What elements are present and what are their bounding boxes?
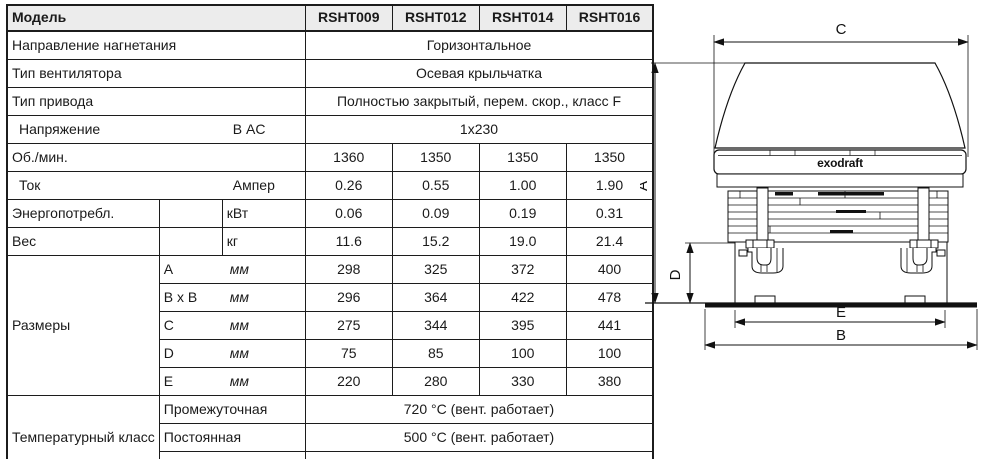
value-cell: 1350 xyxy=(392,144,479,172)
value-cell: 372 xyxy=(479,256,566,284)
value-cell: 344 xyxy=(392,312,479,340)
value-cell: 500 °C (вент. работает) xyxy=(305,424,653,452)
row-drive-type: Тип привода Полностью закрытый, перем. с… xyxy=(7,88,653,116)
value-cell: Max. 250 °C (вент. не работает) xyxy=(305,452,653,459)
value-cell: Полностью закрытый, перем. скор., класс … xyxy=(305,88,653,116)
value-cell: 85 xyxy=(392,340,479,368)
model-column-rsht012: RSHT012 xyxy=(392,5,479,31)
value-cell: 364 xyxy=(392,284,479,312)
row-label: Энергопотребл. xyxy=(7,200,159,228)
value-cell: 15.2 xyxy=(392,228,479,256)
unit-label: мм xyxy=(230,345,249,361)
fan-dimension-diagram: C A D E B exodraft xyxy=(640,0,998,459)
value-cell: 422 xyxy=(479,284,566,312)
unit-label: Ампер xyxy=(218,178,301,194)
value-cell: 280 xyxy=(392,368,479,396)
value-cell: 11.6 xyxy=(305,228,392,256)
value-cell: 395 xyxy=(479,312,566,340)
temp-sub-label: Постоянная xyxy=(159,424,305,452)
value-cell: 296 xyxy=(305,284,392,312)
row-label: Тип вентилятора xyxy=(7,60,305,88)
value-cell: 0.26 xyxy=(305,172,392,200)
dimension-letter: D xyxy=(164,346,230,362)
unit-label: мм xyxy=(230,373,249,389)
row-label-with-unit: Ток Ампер xyxy=(7,172,305,200)
value-cell: 325 xyxy=(392,256,479,284)
temp-sub-label: Промежуточная xyxy=(159,396,305,424)
dim-label-c: C xyxy=(836,21,847,38)
row-label: Напряжение xyxy=(12,122,218,138)
support-post-right xyxy=(918,188,929,245)
unit-label: кг xyxy=(222,228,305,256)
dim-label-d: D xyxy=(667,269,684,280)
dimension-letter: A xyxy=(164,262,230,278)
dim-label-a: A xyxy=(640,181,651,191)
value-cell: Горизонтальное xyxy=(305,31,653,60)
value-cell: 0.55 xyxy=(392,172,479,200)
value-cell: 220 xyxy=(305,368,392,396)
row-fan-type: Тип вентилятора Осевая крыльчатка xyxy=(7,60,653,88)
value-cell: 1360 xyxy=(305,144,392,172)
dimension-letter-cell: Aмм xyxy=(159,256,305,284)
dim-label-e: E xyxy=(836,304,846,321)
row-voltage: Напряжение В AC 1x230 xyxy=(7,116,653,144)
row-label: Направление нагнетания xyxy=(7,31,305,60)
dimension-letter-cell: Eмм xyxy=(159,368,305,396)
value-cell: 0.19 xyxy=(479,200,566,228)
row-label: Ток xyxy=(12,178,218,194)
dimension-d xyxy=(685,243,735,303)
model-column-rsht014: RSHT014 xyxy=(479,5,566,31)
row-label: Об./мин. xyxy=(7,144,305,172)
row-label: Тип привода xyxy=(7,88,305,116)
empty-cell xyxy=(159,200,222,228)
base-strip xyxy=(717,174,963,187)
value-cell: Осевая крыльчатка xyxy=(305,60,653,88)
row-temp-intermediate: Температурный класс Промежуточная 720 °C… xyxy=(7,396,653,424)
empty-cell xyxy=(159,228,222,256)
row-discharge: Направление нагнетания Горизонтальное xyxy=(7,31,653,60)
dimension-letter-cell: Dмм xyxy=(159,340,305,368)
temp-sub-label: Вент. отключен xyxy=(159,452,305,459)
row-weight: Вес кг 11.6 15.2 19.0 21.4 xyxy=(7,228,653,256)
model-header-cell: Модель xyxy=(7,5,305,31)
row-power: Энергопотребл. кВт 0.06 0.09 0.19 0.31 xyxy=(7,200,653,228)
unit-label: мм xyxy=(230,261,249,277)
value-cell: 1350 xyxy=(479,144,566,172)
support-post-left xyxy=(757,188,768,245)
unit-label: мм xyxy=(230,317,249,333)
value-cell: 100 xyxy=(479,340,566,368)
dimension-letter: C xyxy=(164,318,230,334)
row-dimension-a: Размеры Aмм 298 325 372 400 xyxy=(7,256,653,284)
datasheet-page: Модель RSHT009 RSHT012 RSHT014 RSHT016 Н… xyxy=(0,0,998,459)
value-cell: 720 °C (вент. работает) xyxy=(305,396,653,424)
unit-label: В AC xyxy=(218,122,301,138)
header-row: Модель RSHT009 RSHT012 RSHT014 RSHT016 xyxy=(7,5,653,31)
value-cell: 0.06 xyxy=(305,200,392,228)
spec-table: Модель RSHT009 RSHT012 RSHT014 RSHT016 Н… xyxy=(6,4,654,459)
brand-logo: exodraft xyxy=(817,156,863,170)
row-current: Ток Ампер 0.26 0.55 1.00 1.90 xyxy=(7,172,653,200)
dimension-letter-cell: B x Bмм xyxy=(159,284,305,312)
row-rpm: Об./мин. 1360 1350 1350 1350 xyxy=(7,144,653,172)
value-cell: 275 xyxy=(305,312,392,340)
row-label: Вес xyxy=(7,228,159,256)
mounting-foot-left xyxy=(739,240,783,273)
dimension-letter: E xyxy=(164,374,230,390)
model-column-rsht009: RSHT009 xyxy=(305,5,392,31)
dim-label-b: B xyxy=(836,327,846,344)
dimension-letter-cell: Cмм xyxy=(159,312,305,340)
value-cell: 19.0 xyxy=(479,228,566,256)
value-cell: 75 xyxy=(305,340,392,368)
fan-hood xyxy=(715,63,965,148)
dimensions-group-label: Размеры xyxy=(7,256,159,396)
unit-label: кВт xyxy=(222,200,305,228)
unit-label: мм xyxy=(230,289,249,305)
technical-drawing: C A D E B exodraft xyxy=(640,0,998,459)
mounting-foot-right xyxy=(901,240,945,273)
row-label-with-unit: Напряжение В AC xyxy=(7,116,305,144)
value-cell: 1x230 xyxy=(305,116,653,144)
temperature-class-label: Температурный класс xyxy=(7,396,159,459)
value-cell: 298 xyxy=(305,256,392,284)
value-cell: 1.00 xyxy=(479,172,566,200)
dimension-letter: B x B xyxy=(164,290,230,306)
value-cell: 330 xyxy=(479,368,566,396)
value-cell: 0.09 xyxy=(392,200,479,228)
